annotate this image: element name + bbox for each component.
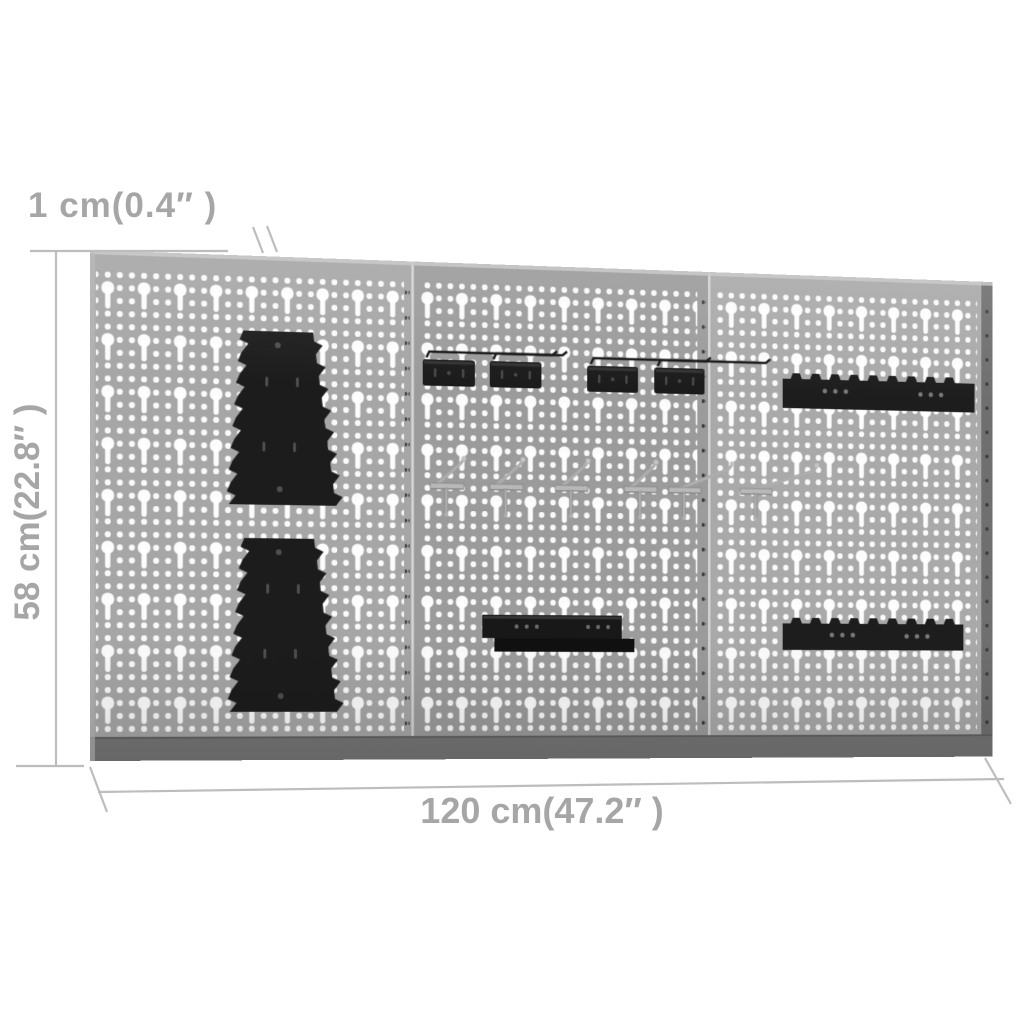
thickness-dimension-label: 1 cm(0.4″ )	[28, 186, 217, 226]
width-dimension-label: 120 cm(47.2″ )	[312, 790, 772, 832]
height-dimension-label: 58 cm(22.8″ )	[6, 382, 50, 642]
product-dimension-figure: 1 cm(0.4″ ) 58 cm(22.8″ ) 120 cm(47.2″ )	[0, 0, 1024, 1024]
dimension-lines	[0, 0, 1024, 1024]
thickness-tick-2	[267, 226, 277, 252]
width-dim-left-tick	[90, 767, 107, 812]
width-dim-right-tick	[985, 758, 1011, 804]
thickness-tick-1	[253, 227, 263, 253]
